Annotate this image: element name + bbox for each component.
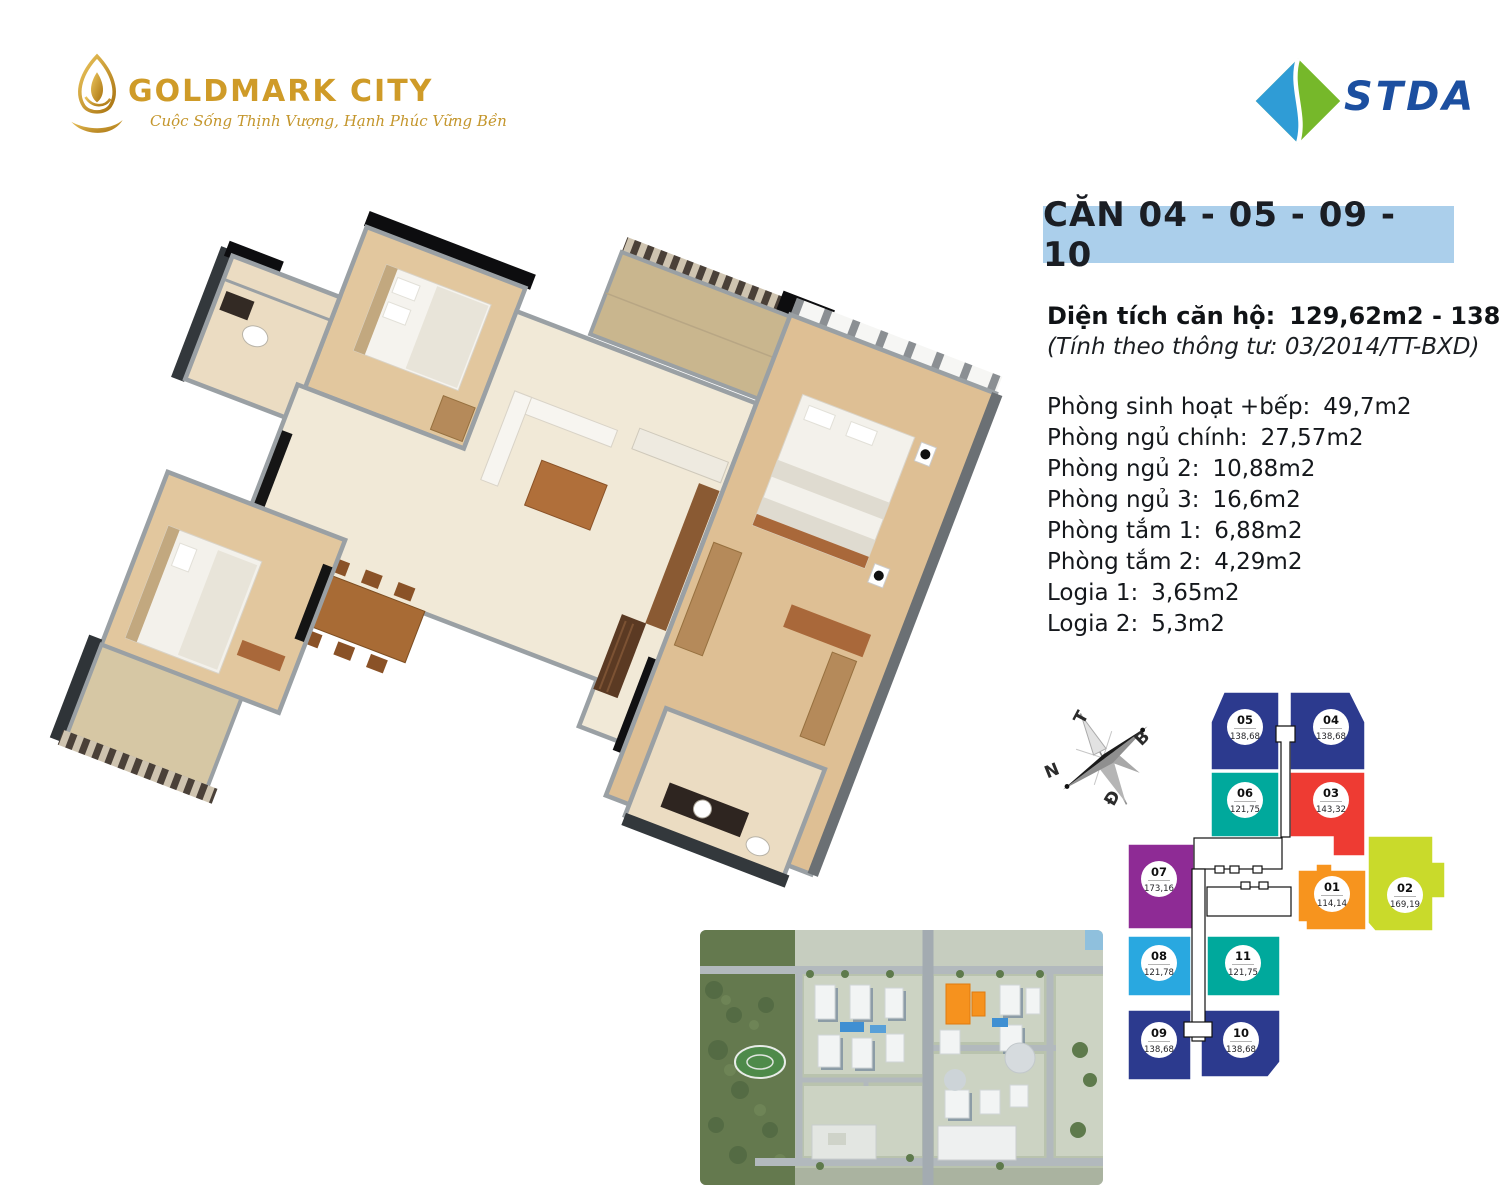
room-value: 49,7m2	[1323, 394, 1411, 420]
room-line: Phòng sinh hoạt +bếp:49,7m2	[1047, 394, 1497, 425]
stda-diamond-icon	[1254, 56, 1342, 146]
unit-number: 05	[1237, 713, 1253, 727]
unit-number: 10	[1233, 1026, 1249, 1040]
room-label: Logia 2:	[1047, 611, 1138, 637]
floor-plan-rotated-group	[33, 97, 1009, 1016]
floorplate-unit-05: 05138,68	[1211, 692, 1279, 770]
unit-number: 02	[1397, 881, 1413, 895]
unit-number: 04	[1323, 713, 1339, 727]
unit-area: 173,16	[1144, 884, 1174, 894]
unit-area: 114,14	[1317, 899, 1347, 909]
room-label: Phòng sinh hoạt +bếp:	[1047, 394, 1310, 420]
area-note: (Tính theo thông tư: 03/2014/TT-BXD)	[1047, 334, 1497, 360]
area-value: 129,62m2 - 138,68m2	[1289, 302, 1501, 330]
room-value: 6,88m2	[1214, 518, 1302, 544]
flyer-page: GOLDMARK CITY Cuộc Sống Thịnh Vượng, Hạn…	[0, 0, 1501, 1200]
area-line: Diện tích căn hộ:129,62m2 - 138,68m2	[1047, 302, 1497, 330]
room-label: Phòng ngủ 3:	[1047, 487, 1199, 513]
area-label: Diện tích căn hộ:	[1047, 302, 1275, 330]
floorplate-unit-04: 04138,68	[1290, 692, 1365, 770]
unit-area: 138,68	[1316, 732, 1346, 742]
room-value: 27,57m2	[1261, 425, 1364, 451]
unit-number: 11	[1235, 949, 1251, 963]
lotus-flame-icon	[66, 52, 128, 142]
floorplate-unit-06: 06121,75	[1211, 772, 1279, 837]
unit-number: 03	[1323, 786, 1339, 800]
room-value: 3,65m2	[1151, 580, 1239, 606]
room-value: 10,88m2	[1212, 456, 1315, 482]
unit-number: 07	[1151, 865, 1167, 879]
room-label: Phòng tắm 2:	[1047, 549, 1201, 575]
room-line: Phòng tắm 2:4,29m2	[1047, 549, 1497, 580]
area-block: Diện tích căn hộ:129,62m2 - 138,68m2 (Tí…	[1047, 302, 1497, 360]
unit-area: 121,75	[1228, 968, 1258, 978]
site-map-art	[700, 930, 1103, 1185]
unit-area: 143,32	[1316, 805, 1346, 815]
floorplate-unit-11: 11121,75	[1207, 936, 1280, 996]
room-label: Logia 1:	[1047, 580, 1138, 606]
room-line: Phòng ngủ chính:27,57m2	[1047, 425, 1497, 456]
brand-tagline: Cuộc Sống Thịnh Vượng, Hạnh Phúc Vững Bề…	[150, 112, 507, 130]
rooms-list: Phòng sinh hoạt +bếp:49,7m2 Phòng ngủ ch…	[1047, 394, 1497, 642]
floor-plan-3d	[28, 150, 968, 910]
unit-title: CĂN 04 - 05 - 09 - 10	[1043, 195, 1454, 275]
unit-area: 121,78	[1144, 968, 1174, 978]
floorplate-unit-03: 03143,32	[1290, 772, 1365, 856]
floorplate-unit-09: 09138,68	[1128, 1010, 1191, 1080]
floorplate-unit-01: 01114,14	[1298, 864, 1366, 930]
room-label: Phòng ngủ 2:	[1047, 456, 1199, 482]
floorplate-unit-10: 10138,68	[1201, 1010, 1280, 1077]
unit-title-bar: CĂN 04 - 05 - 09 - 10	[1043, 206, 1454, 263]
room-line: Logia 1:3,65m2	[1047, 580, 1497, 611]
unit-area: 138,68	[1230, 732, 1260, 742]
room-value: 5,3m2	[1151, 611, 1225, 637]
unit-number: 08	[1151, 949, 1167, 963]
room-line: Phòng ngủ 2:10,88m2	[1047, 456, 1497, 487]
room-line: Phòng ngủ 3:16,6m2	[1047, 487, 1497, 518]
brand-name: GOLDMARK CITY	[128, 74, 433, 109]
room-line: Logia 2:5,3m2	[1047, 611, 1497, 642]
unit-area: 121,75	[1230, 805, 1260, 815]
room-label: Phòng tắm 1:	[1047, 518, 1201, 544]
unit-area: 138,68	[1144, 1045, 1174, 1055]
room-line: Phòng tắm 1:6,88m2	[1047, 518, 1497, 549]
compass-west-label: T	[1070, 707, 1093, 727]
floorplate-keyplan: 05138,6804138,6806121,7503143,3207173,16…	[1128, 670, 1501, 1106]
floorplate-unit-08: 08121,78	[1128, 936, 1191, 996]
floorplate-unit-02: 02169,19	[1368, 836, 1445, 931]
room-value: 16,6m2	[1212, 487, 1300, 513]
site-map	[700, 930, 1103, 1185]
unit-number: 06	[1237, 786, 1253, 800]
floorplate-unit-07: 07173,16	[1128, 844, 1194, 929]
unit-number: 09	[1151, 1026, 1167, 1040]
room-label: Phòng ngủ chính:	[1047, 425, 1248, 451]
compass-south-label: N	[1042, 759, 1063, 783]
unit-number: 01	[1324, 880, 1340, 894]
room-value: 4,29m2	[1214, 549, 1302, 575]
partner-name: STDA	[1344, 74, 1476, 120]
unit-area: 169,19	[1390, 900, 1420, 910]
unit-area: 138,68	[1226, 1045, 1256, 1055]
